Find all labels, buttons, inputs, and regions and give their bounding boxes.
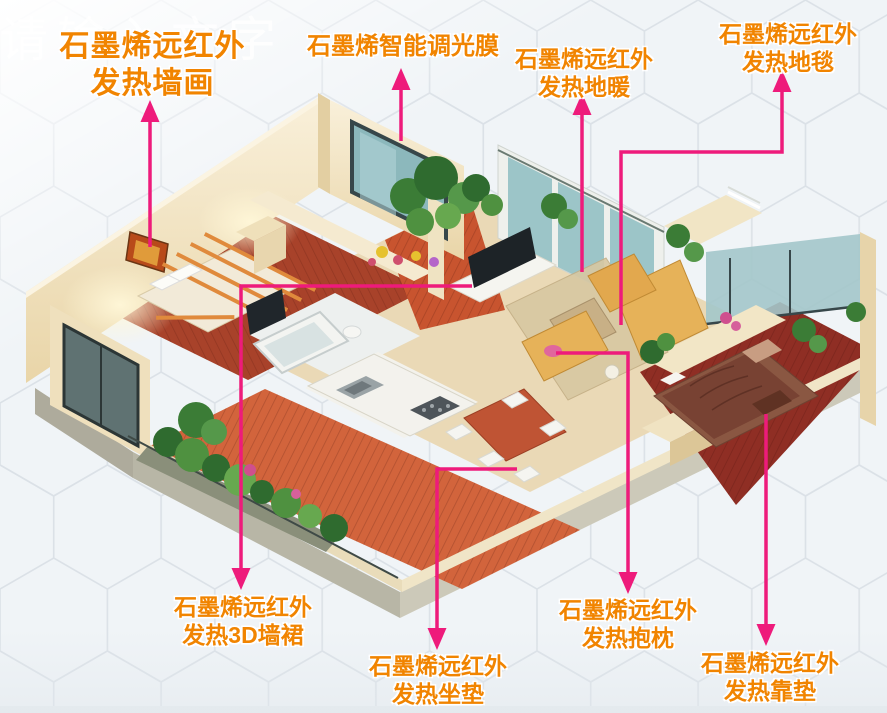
label-wall-skirt-line2: 发热3D墙裙 <box>149 621 337 649</box>
label-carpet-line1: 石墨烯远红外 <box>699 20 877 48</box>
label-back-cushion-line2: 发热靠垫 <box>681 677 859 705</box>
label-floor-heating: 石墨烯远红外 发热地暖 <box>495 45 673 101</box>
pink-pillow <box>544 345 562 357</box>
label-seat-cushion-line2: 发热坐垫 <box>349 680 527 708</box>
label-seat-cushion-line1: 石墨烯远红外 <box>349 652 527 680</box>
label-hug-pillow-line2: 发热抱枕 <box>539 624 717 652</box>
label-wall-art: 石墨烯远红外 发热墙画 <box>40 28 265 102</box>
poster-canvas: 请输入文字 <box>0 0 887 713</box>
label-floor-heating-line2: 发热地暖 <box>495 73 673 101</box>
label-floor-heating-line1: 石墨烯远红外 <box>495 45 673 73</box>
label-back-cushion: 石墨烯远红外 发热靠垫 <box>681 649 859 705</box>
label-wall-skirt-line1: 石墨烯远红外 <box>149 593 337 621</box>
label-hug-pillow: 石墨烯远红外 发热抱枕 <box>539 596 717 652</box>
label-carpet: 石墨烯远红外 发热地毯 <box>699 20 877 76</box>
label-wall-skirt: 石墨烯远红外 发热3D墙裙 <box>149 593 337 649</box>
label-dimming-film-line1: 石墨烯智能调光膜 <box>283 33 523 61</box>
label-seat-cushion: 石墨烯远红外 发热坐垫 <box>349 652 527 708</box>
label-wall-art-line2: 发热墙画 <box>40 65 265 102</box>
label-dimming-film: 石墨烯智能调光膜 <box>283 33 523 61</box>
apartment-3d-illustration <box>0 0 887 713</box>
label-back-cushion-line1: 石墨烯远红外 <box>681 649 859 677</box>
label-wall-art-line1: 石墨烯远红外 <box>40 28 265 65</box>
label-carpet-line2: 发热地毯 <box>699 48 877 76</box>
label-hug-pillow-line1: 石墨烯远红外 <box>539 596 717 624</box>
